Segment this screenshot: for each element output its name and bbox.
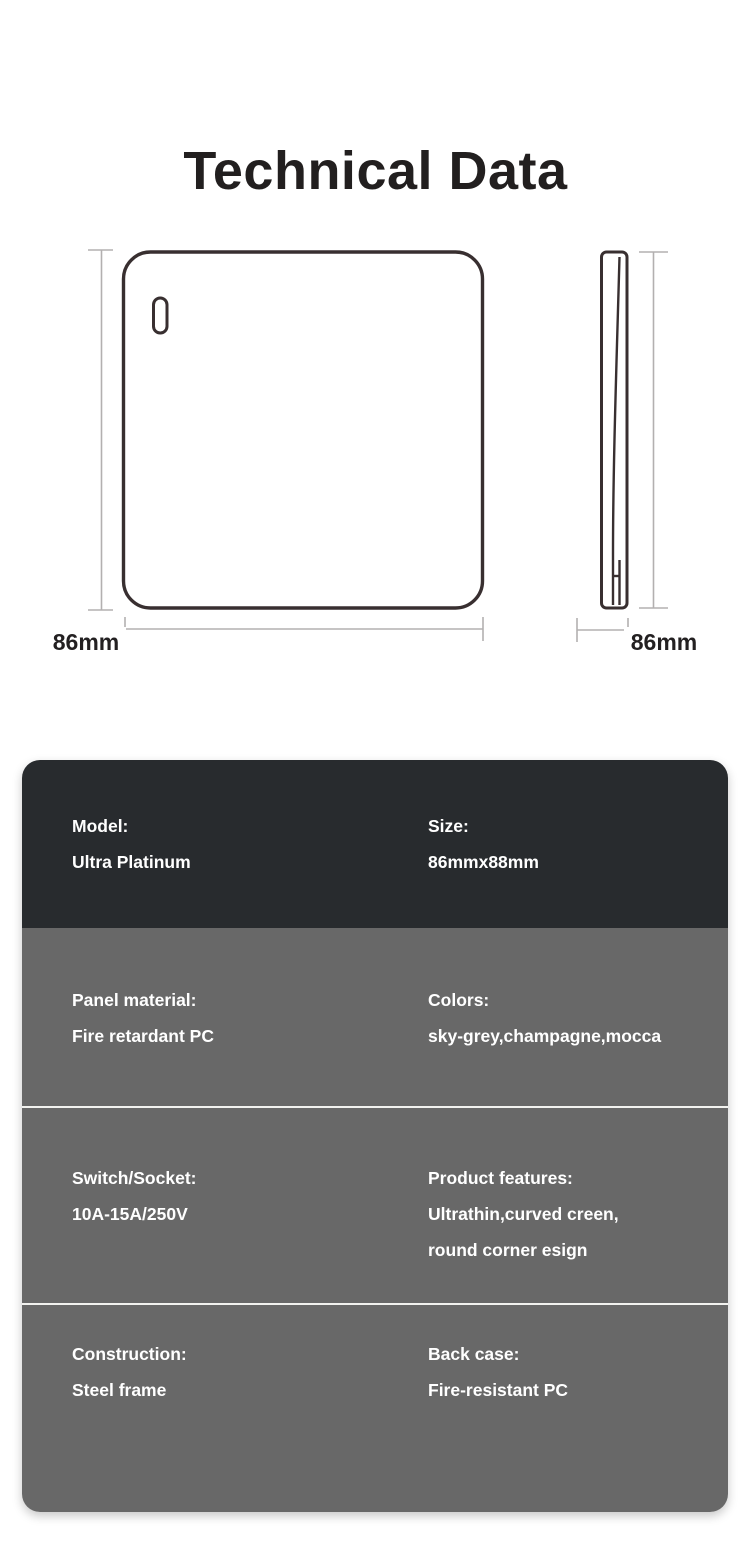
side-thickness-dimension [577,618,628,642]
spec-cell-colors: Colors: sky-grey,champagne,mocca [428,982,728,1106]
spec-value: Fire-resistant PC [428,1372,728,1408]
spec-row-model-size: Model: Ultra Platinum Size: 86mmx88mm [22,760,728,928]
spec-row-construction-backcase: Construction: Steel frame Back case: Fir… [22,1303,728,1512]
spec-label: Product features: [428,1160,728,1196]
switch-slot-icon [154,298,168,333]
spec-value: Steel frame [72,1372,428,1408]
spec-value: Ultra Platinum [72,844,428,880]
spec-cell-size: Size: 86mmx88mm [428,808,728,928]
spec-table: Model: Ultra Platinum Size: 86mmx88mm Pa… [22,760,728,1512]
spec-row-material-colors: Panel material: Fire retardant PC Colors… [22,928,728,1106]
side-height-dimension [639,252,668,608]
spec-label: Switch/Socket: [72,1160,428,1196]
spec-cell-product-features: Product features: Ultrathin,curved creen… [428,1160,728,1303]
spec-label: Model: [72,808,428,844]
spec-label: Construction: [72,1336,428,1372]
front-height-label: 86mm [46,627,126,657]
spec-cell-construction: Construction: Steel frame [72,1336,428,1512]
spec-cell-switch-socket: Switch/Socket: 10A-15A/250V [72,1160,428,1303]
drawing-canvas [0,215,751,685]
switch-side-view [602,252,628,608]
side-height-label: 86mm [624,627,704,657]
spec-label: Panel material: [72,982,428,1018]
spec-label: Colors: [428,982,728,1018]
front-width-dimension [125,617,483,641]
switch-front-view [124,252,483,608]
spec-value-line: Ultrathin,curved creen, [428,1196,728,1232]
front-height-dimension [88,250,113,610]
technical-drawing: 86mm 86mm 86mm 6.5mm [0,215,751,685]
spec-cell-panel-material: Panel material: Fire retardant PC [72,982,428,1106]
spec-value: 86mmx88mm [428,844,728,880]
spec-value: 10A-15A/250V [72,1196,428,1232]
spec-row-rating-features: Switch/Socket: 10A-15A/250V Product feat… [22,1106,728,1303]
spec-cell-model: Model: Ultra Platinum [72,808,428,928]
spec-value-line: round corner esign [428,1232,728,1268]
spec-label: Back case: [428,1336,728,1372]
page-title: Technical Data [0,140,751,202]
spec-value: Fire retardant PC [72,1018,428,1054]
spec-label: Size: [428,808,728,844]
spec-value: sky-grey,champagne,mocca [428,1018,728,1054]
page: Technical Data [0,0,751,1561]
spec-cell-back-case: Back case: Fire-resistant PC [428,1336,728,1512]
